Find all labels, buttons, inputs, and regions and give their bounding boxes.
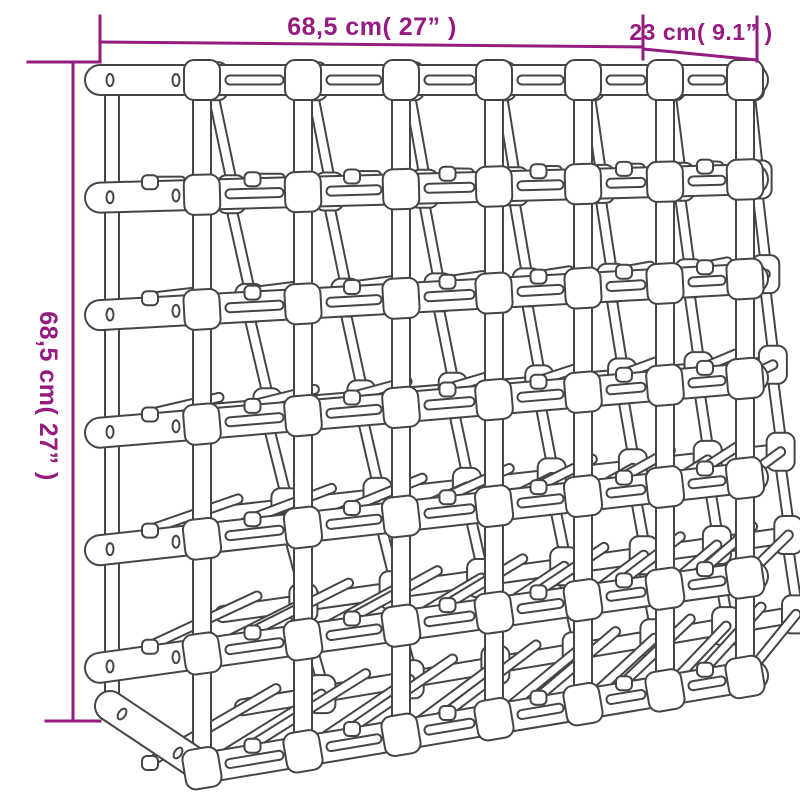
height-dimension-label: 68,5 cm( 27” ) (34, 311, 62, 481)
width-dimension-label: 68,5 cm( 27” ) (287, 13, 457, 41)
depth-dimension-label: 23 cm( 9.1” ) (629, 19, 772, 45)
wine-rack-dimension-diagram: 68,5 cm( 27” ) 23 cm( 9.1” ) 68,5 cm( 27… (0, 0, 800, 800)
diagram-page: 68,5 cm( 27” ) 23 cm( 9.1” ) 68,5 cm( 27… (0, 0, 800, 800)
depth-dim-line (643, 49, 757, 60)
width-dim-line (100, 42, 643, 47)
